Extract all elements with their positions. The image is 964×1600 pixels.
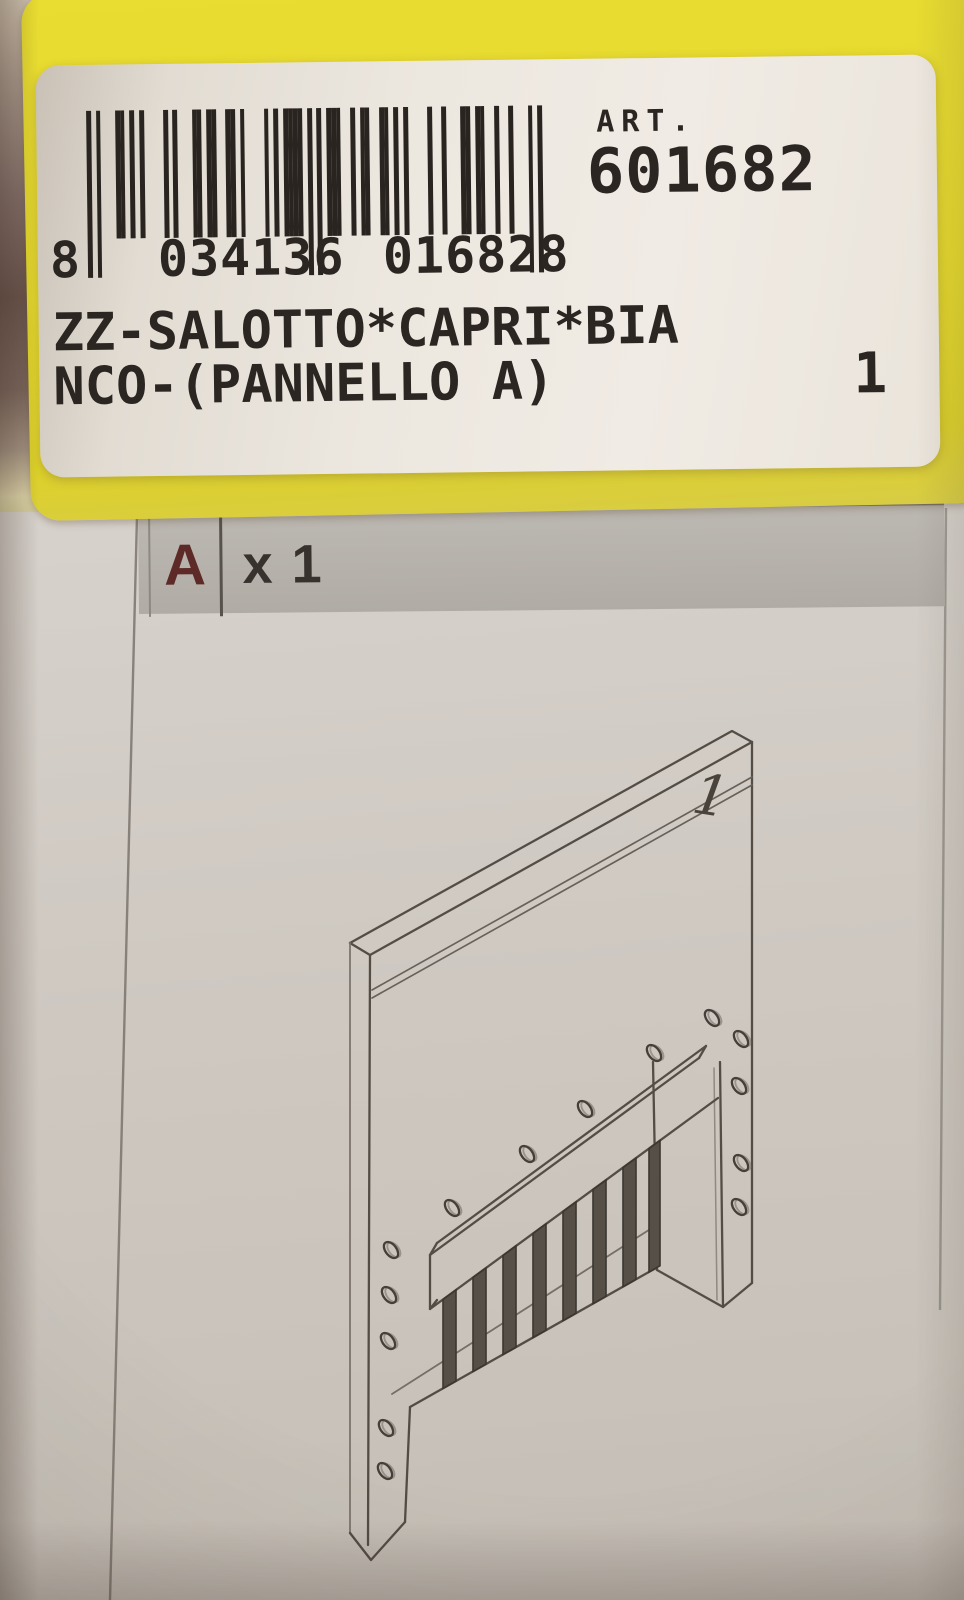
left-leg-right-edge (405, 1407, 410, 1522)
barcode-bar (230, 109, 236, 237)
barcode-bar (350, 108, 356, 236)
barcode-bar (96, 111, 103, 278)
art-number: 601682 (586, 132, 817, 208)
barcode-bar (403, 107, 409, 235)
diagram-part-marker: 1 (688, 761, 733, 831)
frame-right-border (940, 508, 946, 1310)
screw-hole (729, 1195, 751, 1218)
screw-hole-outline (378, 1330, 398, 1351)
screw-hole-outline (517, 1143, 537, 1164)
panel-diagram: 1 (0, 505, 964, 1600)
product-label: 8 034136 016828 ART. 601682 ZZ-SALOTTO*C… (36, 55, 941, 478)
barcode-bar (508, 106, 514, 234)
part-letter-cell: A (148, 512, 223, 617)
screw-hole-outline (381, 1239, 401, 1260)
barcode-bar (336, 108, 342, 236)
barcode-bar (427, 107, 433, 235)
slat (623, 1158, 636, 1287)
barcode-digit-first: 8 (50, 231, 82, 289)
screw-hole-outline (731, 1152, 751, 1173)
screw-hole-outline (731, 1028, 751, 1049)
slat (533, 1224, 546, 1338)
barcode-bar (465, 106, 471, 234)
screw-hole-outline (376, 1417, 396, 1438)
barcode-bar (297, 108, 303, 236)
screw-hole-outline (379, 1284, 399, 1305)
barcode-bar (494, 106, 500, 234)
left-leg-bottom (350, 1522, 405, 1560)
screw-hole (381, 1238, 403, 1261)
screw-hole (442, 1196, 464, 1219)
barcode-bar (384, 107, 390, 235)
barcode-bar (480, 106, 486, 234)
right-leg-front-left-edge-inner (714, 1068, 717, 1300)
barcode-bar (211, 109, 217, 237)
screw-hole (378, 1329, 400, 1352)
slat (593, 1180, 606, 1304)
screw-hole-outline (375, 1460, 395, 1481)
screw-hole (731, 1151, 753, 1174)
right-leg-front-left-edge (720, 1062, 723, 1307)
screw-hole (575, 1097, 597, 1120)
barcode-digit-group-right: 016828 (383, 225, 570, 285)
panel-outline (350, 731, 752, 1560)
parts-header-bar: A x 1 (138, 502, 945, 614)
barcode-bar (393, 107, 399, 235)
part-count: x 1 (242, 533, 324, 596)
screw-hole-outline (575, 1098, 595, 1119)
barcode-bars (86, 105, 547, 325)
panel-left-front-edge (368, 955, 370, 1545)
screw-hole-outline (729, 1196, 749, 1217)
screw-hole (644, 1041, 666, 1064)
part-letter: A (164, 531, 207, 598)
photo-of-label-and-instructions: 1 A x 1 8 034136 016828 ART. 601682 ZZ-S… (0, 0, 964, 1600)
right-leg-bottom (657, 1270, 752, 1307)
slats-group (443, 1141, 660, 1389)
sheet-frame-lines (110, 508, 946, 1600)
screw-hole (517, 1142, 539, 1165)
screw-hole (729, 1074, 751, 1097)
slat (503, 1246, 516, 1355)
barcode-bar (273, 109, 279, 237)
slat (563, 1202, 576, 1321)
screw-hole (731, 1027, 753, 1050)
barcode-bar (264, 109, 270, 237)
slat (649, 1141, 660, 1273)
slat (443, 1290, 456, 1388)
frame-left-border (110, 516, 137, 1600)
barcode-bar (139, 110, 145, 238)
panel-top-left-chamfer (350, 943, 370, 955)
barcode-digit-group-left: 034136 (158, 228, 345, 288)
panel-top-front-edge (370, 742, 752, 955)
screw-hole-outline (644, 1042, 664, 1063)
barcode-bar (240, 109, 246, 237)
barcode-bar (120, 110, 126, 238)
barcode-bar (86, 111, 93, 278)
screw-hole-outline (702, 1007, 722, 1028)
barcode-bar (441, 107, 447, 235)
panel-top-back-edge (350, 731, 752, 943)
quantity: 1 (853, 341, 888, 406)
screw-hole-outline (729, 1075, 749, 1096)
screw-hole (702, 1006, 724, 1029)
screw-hole-outline (442, 1197, 462, 1218)
barcode-bar (196, 109, 202, 237)
product-name-line2: NCO-(PANNELLO A) (53, 351, 555, 417)
screw-hole (375, 1459, 397, 1482)
barcode-bar (172, 110, 178, 238)
slat (473, 1268, 486, 1371)
barcode-bar (129, 110, 135, 238)
screw-hole (376, 1416, 398, 1439)
barcode-bar (364, 107, 370, 235)
screw-hole (379, 1283, 401, 1306)
barcode-bar (163, 110, 169, 238)
